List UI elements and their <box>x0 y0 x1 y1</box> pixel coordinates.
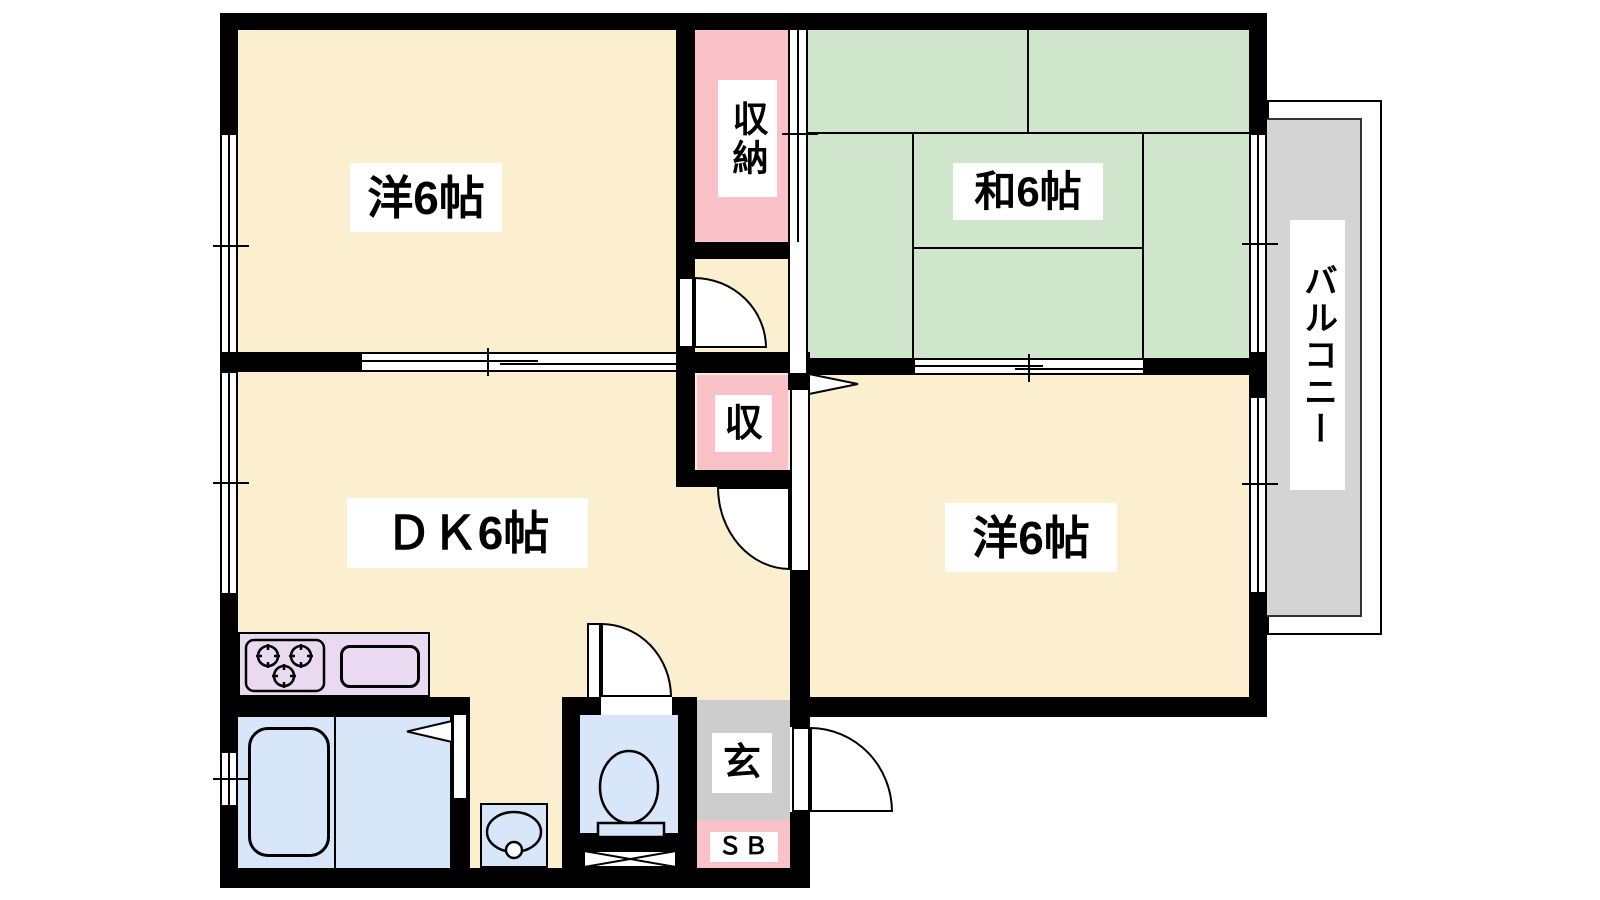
label-western1: 洋6帖 <box>350 163 502 232</box>
label-dk: ＤＫ6帖 <box>347 498 588 568</box>
wall-closet-small-bottom <box>676 470 792 487</box>
wall-kitchen-bath <box>220 697 470 717</box>
door-arrow-bath <box>405 720 453 743</box>
window-bath-left <box>220 753 238 805</box>
label-entrance: 玄 <box>712 733 772 793</box>
floor-plan: 洋6帖 和6帖 ＤＫ6帖 洋6帖 バルコニー 収納 収 玄 ＳＢ <box>0 0 1600 900</box>
label-washitsu: 和6帖 <box>953 163 1103 220</box>
door-swing-entrance <box>810 727 893 812</box>
window-dk-left <box>220 373 238 593</box>
door-leaf-toilet <box>587 623 601 699</box>
toilet-icon <box>596 745 666 838</box>
label-balcony: バルコニー <box>1290 220 1345 490</box>
label-shoe-box: ＳＢ <box>710 832 778 862</box>
door-arrow-closet-small <box>808 373 860 395</box>
window-washitsu-balcony <box>1249 135 1267 352</box>
door-leaf-bath <box>452 713 468 800</box>
wall-western1-bottom-stub <box>220 352 362 372</box>
door-leaf-entrance <box>792 727 810 812</box>
sliding-door-western1-dk <box>362 352 676 372</box>
sliding-door-closet-large <box>788 30 808 373</box>
stove-icon <box>244 638 326 693</box>
washbasin-icon <box>480 803 548 868</box>
doorway-western2 <box>790 390 810 570</box>
door-leaf-western1 <box>678 277 694 348</box>
bathroom-divider <box>334 717 336 868</box>
label-western2: 洋6帖 <box>945 503 1117 572</box>
wall-top <box>220 13 1267 30</box>
label-closet-small: 収 <box>715 395 772 452</box>
sliding-door-washitsu-western2 <box>915 358 1143 375</box>
kitchen-sink-icon <box>340 645 420 688</box>
doorway-toilet-gap <box>601 697 672 715</box>
wall-entry-right-upper <box>790 717 810 727</box>
wall-washitsu-bottom-right-stub <box>1143 358 1249 375</box>
wall-right <box>1249 13 1267 717</box>
wall-dk-western2 <box>790 570 810 697</box>
wall-mid-band-stub <box>788 373 810 390</box>
wall-entry-right-lower <box>790 812 810 888</box>
wall-bottom <box>220 868 810 888</box>
window-western1-left <box>220 135 238 352</box>
wall-western2-bottom <box>790 697 1267 717</box>
label-closet-large: 収納 <box>718 80 777 197</box>
window-western2-balcony <box>1249 398 1267 592</box>
bathtub-icon <box>248 727 330 857</box>
x-window-toilet <box>583 850 677 868</box>
